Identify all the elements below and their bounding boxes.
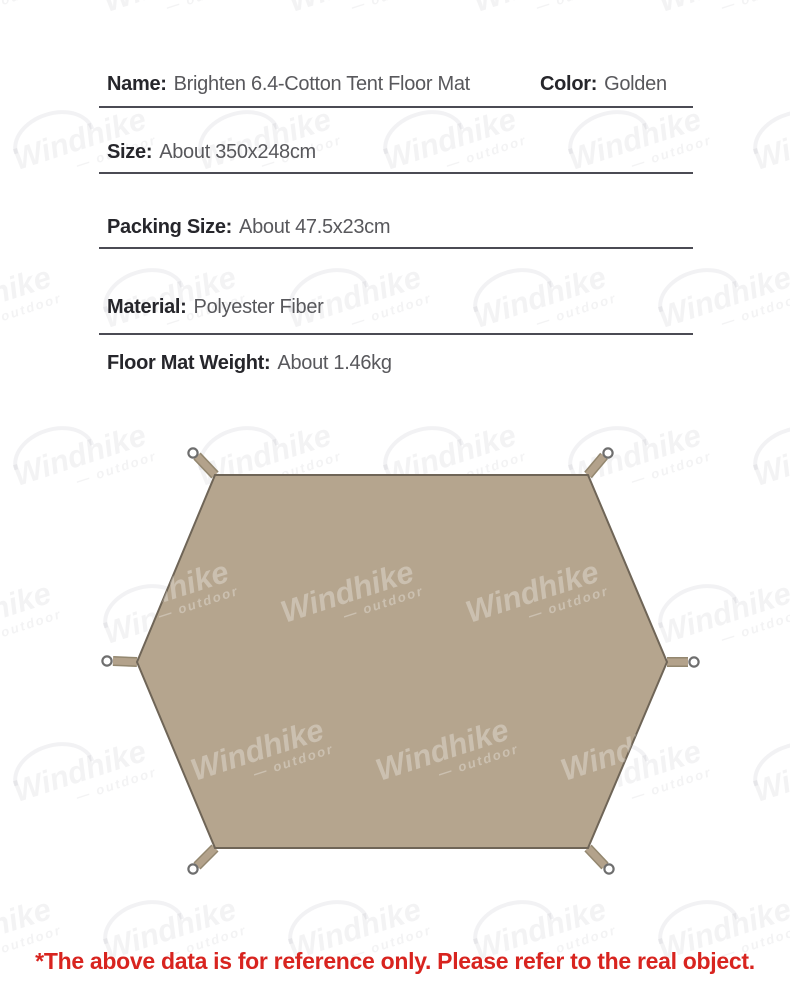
color-value: Golden xyxy=(604,73,667,95)
spec-row-packing-size: Packing Size:About 47.5x23cm xyxy=(107,214,790,241)
name-value: Brighten 6.4-Cotton Tent Floor Mat xyxy=(174,73,470,95)
product-spec-sheet: Windhike— outdoorWindhike— outdoorWindhi… xyxy=(0,0,790,1008)
packing-size-value: About 47.5x23cm xyxy=(239,216,390,238)
divider xyxy=(99,333,693,335)
spec-row-size: Size:About 350x248cm xyxy=(107,139,790,166)
color-label: Color: xyxy=(540,73,597,95)
size-value: About 350x248cm xyxy=(159,141,316,163)
spec-color-group: Color:Golden xyxy=(540,71,667,98)
packing-size-label: Packing Size: xyxy=(107,216,232,238)
spec-row-weight: Floor Mat Weight:About 1.46kg xyxy=(107,350,790,377)
spec-list: Name:Brighten 6.4-Cotton Tent Floor Mat … xyxy=(0,0,790,1008)
name-label: Name: xyxy=(107,73,167,95)
divider xyxy=(99,247,693,249)
spec-row-name: Name:Brighten 6.4-Cotton Tent Floor Mat … xyxy=(107,71,790,98)
divider xyxy=(99,106,693,108)
disclaimer-text: *The above data is for reference only. P… xyxy=(0,948,790,975)
divider xyxy=(99,172,693,174)
weight-label: Floor Mat Weight: xyxy=(107,352,270,374)
weight-value: About 1.46kg xyxy=(277,352,391,374)
material-value: Polyester Fiber xyxy=(194,296,324,318)
size-label: Size: xyxy=(107,141,152,163)
spec-row-material: Material:Polyester Fiber xyxy=(107,294,790,321)
material-label: Material: xyxy=(107,296,187,318)
